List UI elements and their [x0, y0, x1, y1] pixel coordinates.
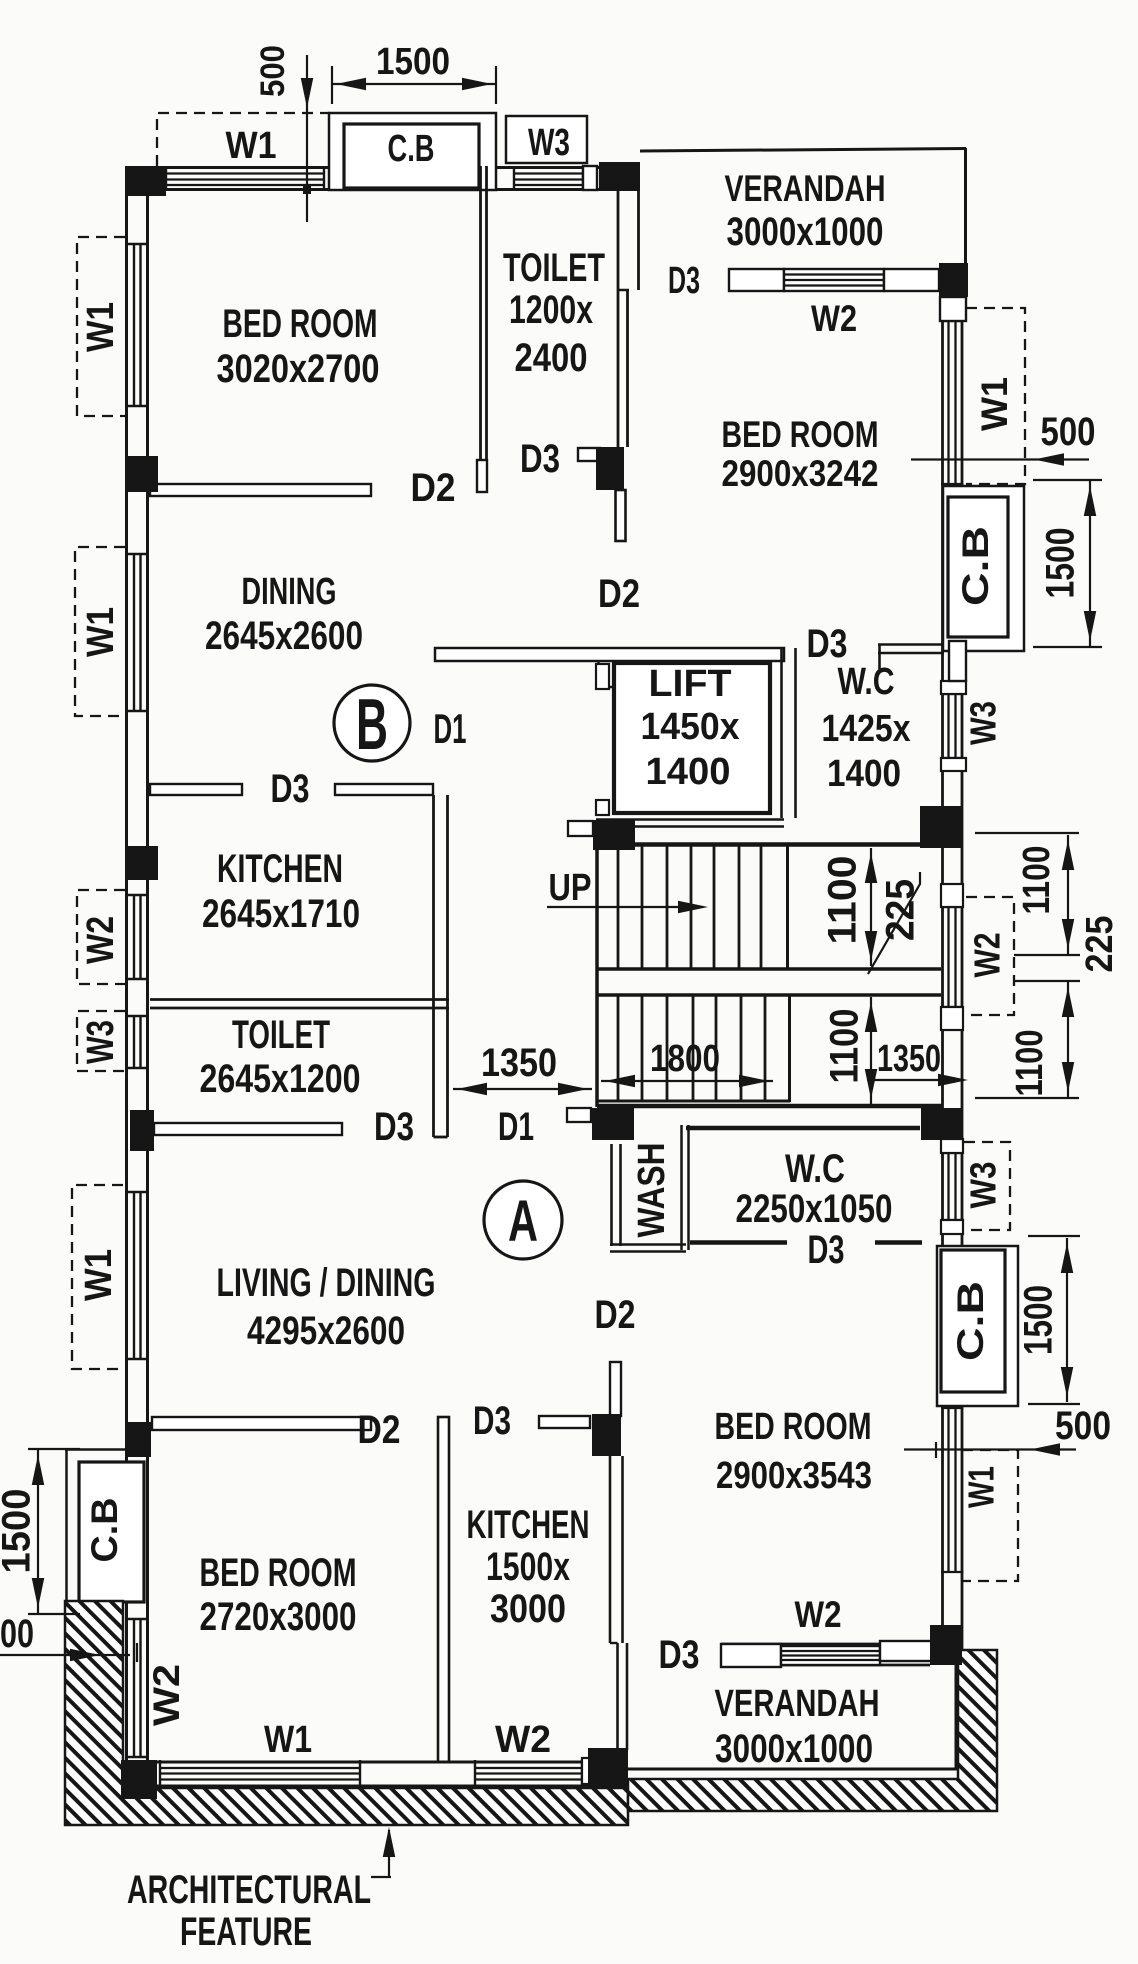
svg-text:BED ROOM: BED ROOM	[715, 1406, 872, 1448]
svg-text:D1: D1	[434, 705, 467, 752]
svg-text:2645x1200: 2645x1200	[200, 1057, 361, 1101]
svg-text:1100: 1100	[1016, 846, 1058, 915]
svg-text:500: 500	[1041, 410, 1096, 454]
svg-text:D3: D3	[659, 1633, 700, 1677]
svg-text:W.C: W.C	[785, 1147, 845, 1191]
svg-text:1450x: 1450x	[641, 706, 740, 748]
svg-text:2900x3242: 2900x3242	[722, 453, 879, 494]
svg-text:1500x: 1500x	[486, 1545, 570, 1589]
svg-text:1500: 1500	[1017, 1285, 1061, 1355]
svg-text:1500: 1500	[376, 41, 450, 83]
svg-text:225: 225	[1079, 916, 1121, 973]
svg-text:1400: 1400	[827, 753, 901, 795]
svg-text:W2: W2	[146, 1664, 187, 1726]
svg-text:D3: D3	[374, 1105, 414, 1149]
svg-text:BED ROOM: BED ROOM	[722, 414, 879, 455]
svg-text:1100: 1100	[821, 856, 865, 945]
svg-text:D3: D3	[473, 1399, 511, 1443]
svg-text:D2: D2	[411, 466, 456, 510]
svg-text:1350: 1350	[877, 1038, 941, 1080]
svg-text:W1: W1	[80, 302, 122, 352]
svg-text:VERANDAH: VERANDAH	[715, 1683, 880, 1725]
svg-text:ARCHITECTURAL: ARCHITECTURAL	[127, 1868, 371, 1912]
svg-text:500: 500	[254, 45, 292, 97]
svg-text:BED ROOM: BED ROOM	[223, 302, 378, 346]
svg-text:LIVING / DINING: LIVING / DINING	[217, 1261, 436, 1305]
svg-text:D3: D3	[808, 1228, 845, 1272]
svg-text:W.C: W.C	[838, 661, 895, 703]
svg-text:W1: W1	[226, 125, 277, 167]
svg-text:TOILET: TOILET	[503, 246, 605, 290]
svg-text:W1: W1	[78, 1249, 120, 1301]
svg-text:1200x: 1200x	[509, 288, 593, 332]
svg-text:225: 225	[879, 879, 923, 941]
svg-text:500: 500	[1055, 1404, 1111, 1448]
svg-text:W2: W2	[80, 916, 122, 964]
svg-text:A: A	[508, 1189, 538, 1254]
svg-text:BED ROOM: BED ROOM	[200, 1551, 357, 1595]
svg-text:B: B	[356, 685, 388, 765]
svg-text:W2: W2	[495, 1719, 551, 1761]
svg-text:C.B: C.B	[955, 526, 996, 606]
svg-text:1350: 1350	[481, 1041, 557, 1085]
svg-text:C.B: C.B	[950, 1281, 991, 1361]
svg-text:W1: W1	[974, 377, 1015, 431]
svg-text:D3: D3	[271, 767, 310, 811]
svg-text:TOILET: TOILET	[232, 1013, 330, 1057]
svg-text:W3: W3	[528, 122, 570, 164]
svg-text:4295x2600: 4295x2600	[247, 1309, 405, 1353]
svg-text:W1: W1	[264, 1719, 312, 1761]
svg-text:WASH: WASH	[631, 1143, 673, 1238]
svg-text:D1: D1	[498, 1105, 534, 1149]
svg-text:W1: W1	[961, 1466, 1002, 1508]
svg-text:00: 00	[0, 1612, 34, 1656]
svg-text:1425x: 1425x	[822, 708, 911, 750]
svg-text:W2: W2	[795, 1594, 842, 1635]
svg-text:1800: 1800	[650, 1038, 720, 1080]
svg-text:W1: W1	[80, 607, 122, 657]
svg-text:KITCHEN: KITCHEN	[467, 1503, 590, 1547]
svg-text:D2: D2	[358, 1408, 401, 1452]
svg-text:D2: D2	[598, 572, 640, 616]
svg-text:D3: D3	[520, 437, 560, 481]
svg-text:W3: W3	[963, 1162, 1004, 1209]
svg-text:1400: 1400	[646, 751, 731, 793]
svg-text:3000x1000: 3000x1000	[715, 1727, 873, 1771]
svg-text:DINING: DINING	[242, 571, 337, 613]
svg-text:2400: 2400	[515, 336, 588, 380]
svg-text:2645x2600: 2645x2600	[205, 614, 363, 658]
svg-text:3000: 3000	[490, 1587, 566, 1631]
svg-text:W3: W3	[80, 1020, 122, 1064]
svg-text:KITCHEN: KITCHEN	[217, 847, 343, 891]
svg-text:VERANDAH: VERANDAH	[725, 168, 886, 209]
svg-text:1500: 1500	[1039, 528, 1083, 599]
svg-text:LIFT: LIFT	[649, 663, 732, 705]
svg-text:1500: 1500	[0, 1489, 39, 1574]
svg-text:3000x1000: 3000x1000	[727, 210, 884, 254]
svg-text:2900x3543: 2900x3543	[716, 1455, 872, 1497]
svg-text:C.B: C.B	[388, 128, 435, 170]
svg-text:1100: 1100	[1009, 1030, 1051, 1097]
svg-text:1100: 1100	[823, 1009, 867, 1084]
svg-text:UP: UP	[549, 867, 592, 909]
svg-text:D3: D3	[807, 622, 848, 666]
svg-text:FEATURE: FEATURE	[180, 1910, 312, 1954]
svg-text:3020x2700: 3020x2700	[217, 347, 380, 391]
svg-text:W2: W2	[811, 298, 857, 339]
svg-text:2645x1710: 2645x1710	[202, 892, 360, 936]
svg-text:D3: D3	[668, 260, 700, 302]
svg-text:W2: W2	[967, 933, 1008, 978]
svg-text:C.B: C.B	[84, 1498, 125, 1563]
svg-text:2720x3000: 2720x3000	[200, 1595, 357, 1639]
svg-text:D2: D2	[595, 1293, 636, 1337]
svg-text:W3: W3	[963, 701, 1004, 745]
svg-text:2250x1050: 2250x1050	[736, 1187, 893, 1231]
